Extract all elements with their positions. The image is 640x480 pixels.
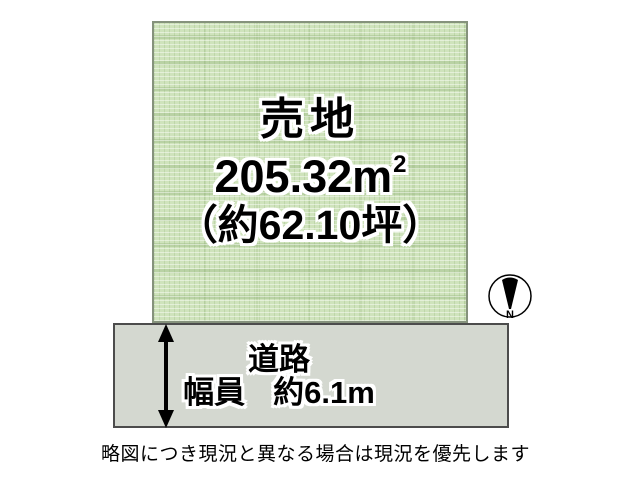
- road-width-label: 幅員: [183, 376, 245, 409]
- land-plot-area: 売地 205.32m2 （約62.10坪）: [152, 21, 468, 323]
- compass-north-icon: N: [486, 272, 534, 324]
- plot-title: 売地: [260, 95, 360, 144]
- plot-tsubo-size: （約62.10坪）: [177, 201, 444, 250]
- road-width: 幅員 約6.1m: [183, 376, 375, 409]
- plot-area-exponent: 2: [393, 151, 406, 178]
- width-measure-arrow-icon: [149, 318, 183, 434]
- plot-area-size: 205.32m2: [214, 144, 405, 201]
- plot-area-unit: m: [352, 151, 392, 202]
- road-width-value: 約6.1m: [273, 376, 375, 409]
- disclaimer-caption: 略図につき現況と異なる場合は現況を優先します: [0, 439, 631, 466]
- road-width-gap: [245, 376, 273, 409]
- compass-north-label: N: [506, 309, 514, 321]
- road-name: 道路: [248, 343, 310, 376]
- site-plan-canvas: 売地 205.32m2 （約62.10坪） 道路 幅員 約6.1m N 略図につ…: [0, 0, 640, 480]
- plot-area-value: 205.32: [214, 151, 352, 202]
